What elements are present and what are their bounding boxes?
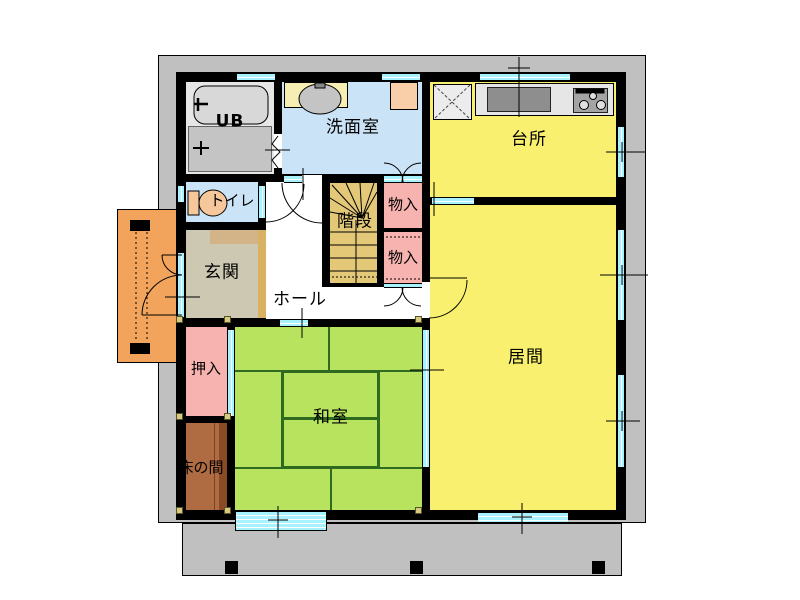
window-living-right-2 <box>617 375 625 467</box>
label-entrance: 玄関 <box>204 265 240 282</box>
window-washitsu-bottom <box>235 511 327 531</box>
label-washitsu: 和室 <box>313 410 349 427</box>
window-kitchen-right <box>617 127 625 177</box>
room-hall-lower <box>322 287 422 319</box>
pillar-icon <box>415 507 422 514</box>
pillar-icon <box>176 507 183 514</box>
label-tokonoma: 床の間 <box>178 461 223 476</box>
toilet-door-opening <box>258 186 266 218</box>
refrigerator-space <box>433 84 472 120</box>
room-stairs <box>330 183 377 283</box>
porch-post-icon <box>130 343 150 354</box>
washbasin-counter <box>284 82 348 108</box>
living-door-opening <box>422 282 430 318</box>
pillar-icon <box>176 413 183 420</box>
label-living: 居間 <box>508 350 544 367</box>
kitchen-sliding-door <box>432 197 474 205</box>
entrance-porch <box>117 209 177 363</box>
label-hall: ホール <box>273 292 327 309</box>
veranda-post-icon <box>410 561 423 574</box>
agarikamachi-strip <box>258 230 266 318</box>
laundry-pan <box>390 82 418 110</box>
entrance-door-opening <box>177 253 185 317</box>
label-stairs: 階段 <box>337 214 373 231</box>
washroom-door-gap <box>302 175 322 183</box>
label-ub: UB <box>216 114 245 131</box>
tatami-line <box>328 327 330 370</box>
closet-upper-door-opening <box>384 175 422 183</box>
veranda-post-icon <box>592 561 605 574</box>
tatami-line <box>330 469 332 510</box>
window-living-right-1 <box>617 230 625 320</box>
oshiire-fusuma <box>227 330 235 416</box>
stove <box>573 88 608 113</box>
entrance-step <box>210 230 258 244</box>
pillar-icon <box>415 316 422 323</box>
washitsu-north-sliding-door <box>280 319 308 327</box>
window-living-bottom <box>478 512 568 523</box>
window-ub-top <box>237 73 275 81</box>
label-washroom: 洗面室 <box>326 120 380 137</box>
closet-lower-door-opening <box>384 283 422 288</box>
kitchen-sink <box>487 87 551 112</box>
label-kitchen: 台所 <box>511 132 547 149</box>
window-washroom-top <box>382 73 420 81</box>
porch-post-icon <box>130 220 150 231</box>
window-kitchen-top <box>480 73 570 81</box>
pillar-icon <box>224 507 231 514</box>
washroom-door-opening <box>284 175 302 183</box>
label-closet-upper: 物入 <box>388 198 418 213</box>
floor-plan: UB 洗面室 台所 トイレ 階段 物入 物入 ホール 玄関 居間 押入 和室 床… <box>0 0 800 600</box>
washitsu-east-fusuma <box>422 330 430 467</box>
label-oshiire: 押入 <box>191 362 221 377</box>
label-closet-lower: 物入 <box>388 251 418 266</box>
label-toilet: トイレ <box>209 194 254 209</box>
pillar-icon <box>176 316 183 323</box>
ub-door-gap <box>274 134 282 168</box>
pillar-icon <box>224 316 231 323</box>
ub-shower-area <box>188 126 272 172</box>
window-toilet-left <box>177 186 185 202</box>
pillar-icon <box>224 413 231 420</box>
veranda-post-icon <box>225 561 238 574</box>
